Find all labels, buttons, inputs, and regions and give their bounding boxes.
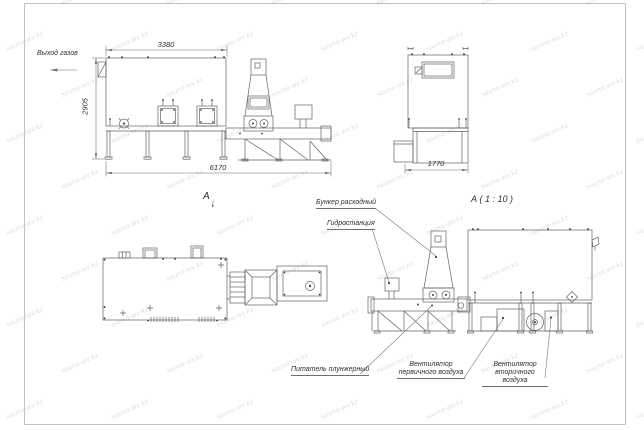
dimension-lines [50,46,468,208]
hopper-callout: Бункер расходный [316,199,376,209]
main-side-view [98,56,331,161]
hopper-tower [244,59,273,131]
dimension-left-2905: 2905 [82,86,91,126]
dimension-bottom-6170: 6170 [198,164,238,173]
detail-a-label: А ( 1 : 10 ) [471,194,513,205]
burner-flange [119,118,129,128]
dimension-top-3380: 3380 [146,41,186,50]
feeder-conveyor [226,105,331,161]
detail-side-view [368,228,599,333]
secondary-fan-callout-line2: вторичного воздуха [495,369,535,384]
plan-view [103,246,327,322]
secondary-fan-callout: Вентилятор вторичного воздуха [482,361,548,387]
primary-fan-callout-line2: первичного воздуха [399,369,464,376]
hatch-door-1 [158,99,178,126]
primary-fan-callout-line1: Вентилятор [409,361,452,368]
feeder-truss [372,311,456,333]
secondary-fan-callout-line1: Вентилятор [493,361,536,368]
drawing-sheet: sauna-wv.kzsauna-wv.kzsauna-wv.kzsauna-w… [0,0,644,430]
view-a-label: А [203,191,210,203]
gas-flow-arrow [50,69,77,72]
plan-hopper-funnel [245,270,277,305]
primary-fan-callout: Вентилятор первичного воздуха [397,361,465,379]
detail-hopper-tower [423,231,454,302]
gas-outlet-flange [98,62,106,77]
plan-feeder-housing [277,266,327,301]
hatch-door-2 [197,99,217,126]
plunger-feeder-unit [368,297,467,313]
hydrostation-callout: Гидростанция [327,220,375,230]
hydrostation-unit [385,278,399,299]
end-view [394,47,468,163]
plan-feeder-strip [227,272,245,303]
view-a-arrow [212,201,214,208]
gas-outlet-label: Выход газов [37,50,78,58]
dimension-end-1770: 1770 [416,160,456,169]
plunger-feeder-callout: Питатель плунжерный [291,366,369,376]
